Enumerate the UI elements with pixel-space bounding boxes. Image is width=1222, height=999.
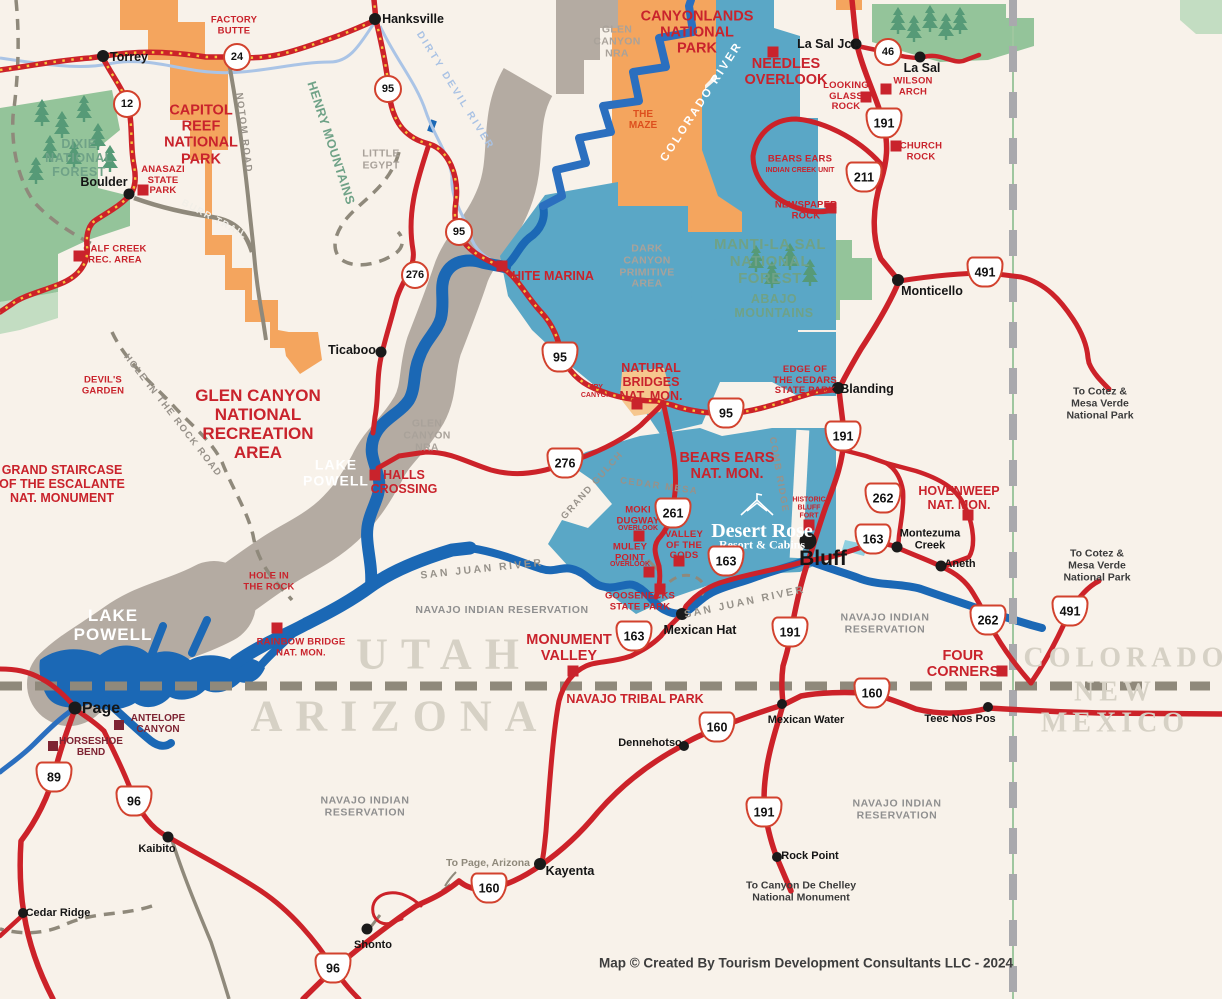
route-shield-number: 163 (624, 629, 645, 643)
route-shield-number: 96 (127, 794, 141, 808)
route-shield-number: 24 (231, 51, 243, 63)
dot-ticaboo (376, 347, 387, 358)
route-shield-number: 276 (406, 269, 424, 281)
marker-needles-overlook (768, 47, 779, 58)
dot-kayenta (534, 858, 546, 870)
dot-aneth (936, 561, 947, 572)
marker-newspaper-rock (826, 203, 837, 214)
route-shield-46: 46 (874, 38, 902, 66)
dot-cedar-ridge (18, 908, 28, 918)
marker-halls-crossing (370, 470, 381, 481)
marker-four-corners (997, 666, 1008, 677)
dot-boulder (124, 189, 135, 200)
marker-rainbow-bridge (272, 623, 283, 634)
marker-historic-bluff-fort (804, 520, 815, 531)
marker-calf-creek (74, 251, 85, 262)
route-shield-number: 96 (326, 961, 340, 975)
marker-valley-of-the-gods (674, 556, 685, 567)
route-shield-12: 12 (113, 90, 141, 118)
dot-blanding (832, 382, 844, 394)
dot-torrey (97, 50, 109, 62)
route-shield-number: 160 (479, 881, 500, 895)
marker-monument-valley (568, 666, 579, 677)
dot-hanksville (369, 13, 381, 25)
dot-bluff (800, 533, 817, 550)
route-shield-number: 261 (663, 506, 684, 520)
route-shield-number: 12 (121, 98, 133, 110)
marker-goosenecks (655, 584, 666, 595)
glen-canyon-nra-gray (69, 0, 625, 684)
route-shield-number: 163 (863, 532, 884, 546)
marker-antelope-canyon (114, 720, 124, 730)
marker-muley-point (644, 567, 655, 578)
route-shield-number: 95 (719, 406, 733, 420)
route-shield-number: 95 (453, 226, 465, 238)
dot-dennehotso (679, 741, 689, 751)
dot-rock-point (772, 852, 782, 862)
marker-church-rock (891, 141, 902, 152)
route-shield-number: 163 (716, 554, 737, 568)
route-shield-number: 191 (780, 625, 801, 639)
route-shield-number: 46 (882, 46, 894, 58)
route-shield-number: 491 (1060, 604, 1081, 618)
marker-hovenweep (963, 510, 974, 521)
dot-montezuma-creek (892, 542, 903, 553)
route-shield-24: 24 (223, 43, 251, 71)
route-shield-276: 276 (401, 261, 429, 289)
marker-looking-glass-rock (861, 92, 872, 103)
marker-hite-marina (497, 261, 508, 272)
dot-teec-nos-pos (983, 702, 993, 712)
route-shield-number: 160 (862, 686, 883, 700)
route-shield-number: 89 (47, 770, 61, 784)
dot-shonto (362, 924, 373, 935)
route-shield-number: 491 (975, 265, 996, 279)
marker-natural-bridges (632, 399, 643, 410)
marker-wilson-arch (881, 84, 892, 95)
dot-mexican-water (777, 699, 787, 709)
route-shield-number: 191 (833, 429, 854, 443)
route-shield-number: 262 (873, 491, 894, 505)
dot-la-sal-jct (851, 39, 862, 50)
route-shield-number: 191 (874, 116, 895, 130)
route-shield-number: 191 (754, 805, 775, 819)
marker-moki-dugway (634, 531, 645, 542)
route-shield-95: 95 (445, 218, 473, 246)
route-shield-number: 211 (854, 170, 874, 184)
route-shield-number: 262 (978, 613, 999, 627)
route-shield-number: 276 (555, 456, 576, 470)
route-shield-95: 95 (374, 75, 402, 103)
route-shield-number: 95 (382, 83, 394, 95)
marker-anasazi-state-park (138, 185, 149, 196)
map-terrain-layer (0, 0, 1222, 999)
dot-monticello (892, 274, 904, 286)
marker-horseshoe-bend (48, 741, 58, 751)
four-corners-tourist-map: FACTORY BUTTECAPITOL REEF NATIONAL PARKD… (0, 0, 1222, 999)
route-shield-number: 95 (553, 350, 567, 364)
dot-kaibito (163, 832, 174, 843)
dot-mexican-hat (676, 608, 688, 620)
route-shield-number: 160 (707, 720, 728, 734)
dot-la-sal (915, 52, 926, 63)
dot-page (69, 702, 82, 715)
